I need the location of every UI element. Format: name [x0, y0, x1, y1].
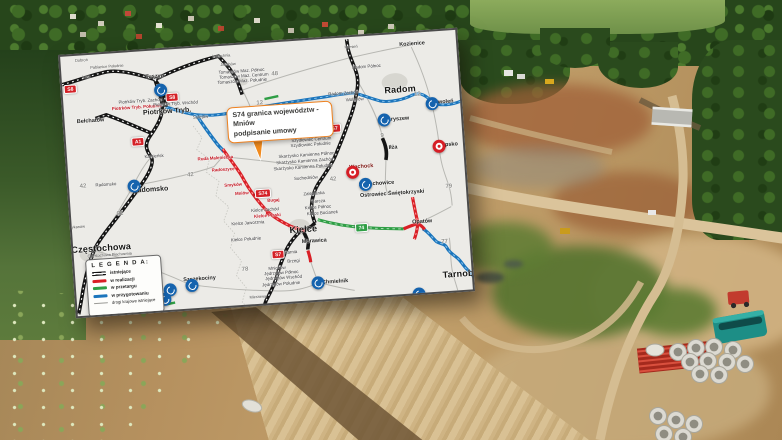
map-label: Suchedniów [294, 175, 318, 181]
map-label: Tomaszów Maz. Południe [217, 78, 267, 86]
map-marker-blue [377, 113, 391, 127]
excavator [560, 228, 570, 234]
map-label: Mierzawa [249, 294, 266, 299]
concrete-rings [646, 339, 754, 440]
legend-label: w przetargu [111, 283, 137, 290]
map-label: Wolanów [346, 97, 364, 103]
map-marker-red [432, 139, 446, 153]
road-badge-s7: S7 [271, 250, 285, 260]
map-label: Łask [82, 75, 90, 79]
map-label: 42 [187, 172, 194, 178]
map-label: 9 [380, 133, 384, 139]
map-label: Bełchatów [77, 118, 105, 125]
map-label: 77 [441, 239, 448, 245]
map-label: Mniów [235, 191, 249, 196]
map-label: 78 [242, 267, 249, 273]
legend-swatch [93, 286, 107, 290]
map-label: Tarnobrzeg [442, 267, 475, 279]
map-label: Iłża [389, 145, 398, 151]
map-marker-blue [311, 276, 325, 290]
van [712, 310, 768, 345]
legend-label: drogi krajowe istniejące [112, 297, 156, 305]
map-label: Kielce Południe [231, 236, 262, 242]
legend-swatch [94, 303, 108, 305]
map-label: Radom [384, 84, 416, 95]
excavator [545, 79, 554, 84]
map-label: 48 [271, 71, 278, 77]
map-label: Mykanów [68, 225, 85, 230]
map-label: Jakubów [220, 62, 236, 67]
bridge [651, 107, 692, 128]
map-label: Opatów [412, 219, 432, 226]
map-legend: L E G E N D A: istniejącew realizacjiw p… [85, 254, 165, 317]
map-label: 12 [414, 91, 421, 97]
map-label: Szydłowiec Południe [290, 141, 330, 148]
road-badge-s8: S8 [64, 84, 78, 94]
truck [648, 210, 656, 215]
map-label: Ruda Maleniecka [197, 155, 233, 162]
map-label: Dobroń [75, 58, 88, 63]
map-label: Jędrzejów Południe [262, 281, 300, 288]
map-label: Bugaj [267, 198, 279, 203]
map-label: Chmielnik [322, 279, 349, 286]
map-label: Pabianice Południe [90, 64, 124, 70]
legend-swatch [93, 294, 107, 298]
road-badge-s74: S74 [255, 188, 271, 198]
road-badge-a1: A1 [131, 137, 145, 147]
map-label: 79 [445, 183, 452, 189]
map-marker-blue [425, 97, 439, 111]
map-label: Kielce Jaworznia [231, 220, 264, 227]
legend-label: istniejące [110, 269, 131, 275]
callout-s74: S74 granica województw - Mniów podpisani… [226, 100, 334, 143]
map-label: Kamień [344, 45, 357, 50]
map-label: Radoszyce [212, 167, 235, 173]
map-label: Kielce Piaski [254, 213, 281, 219]
map-label: Zalezianka [303, 191, 324, 197]
legend-swatch [92, 279, 106, 283]
map-label: Kamieńsk [144, 154, 164, 160]
map-marker-blue [185, 278, 199, 292]
tractor [727, 290, 749, 308]
news-image: RadomKielceCzęstochowaTarnobrzegPiotrków… [0, 0, 782, 440]
map-label: Kozienice [399, 41, 425, 48]
legend-items: istniejącew realizacjiw przetarguw przyg… [92, 267, 159, 307]
map-label: 91 [116, 211, 123, 217]
map-label: Smyków [224, 183, 242, 189]
map-marker-blue [359, 177, 373, 191]
map-label: Morawica [302, 238, 327, 245]
road-badge-74: 74 [355, 223, 368, 233]
map-label: Kielce Bocianek [307, 210, 338, 217]
map-label: Brzegi [287, 259, 300, 264]
map-label: Kielce [289, 224, 317, 235]
map-label: Radom Północ [352, 64, 381, 70]
legend-label: w przygotowaniu [111, 290, 149, 298]
road-badge-s8: S8 [165, 92, 179, 102]
map-label: Radomsko [95, 182, 116, 188]
map-label: Tuszyn [145, 74, 164, 81]
site-container [504, 70, 513, 76]
map-label: Ostrowiec Świętokrzyski [360, 190, 425, 200]
legend-item: drogi krajowe istniejące [94, 297, 159, 306]
road-map-inset: RadomKielceCzęstochowaTarnobrzegPiotrków… [58, 28, 475, 319]
tank [241, 398, 263, 415]
map-label: 42 [79, 183, 86, 189]
map-label: Lubochnia [212, 53, 230, 58]
legend-label: w realizacji [110, 276, 135, 283]
map-marker-red [346, 165, 360, 179]
legend-swatch [92, 271, 106, 276]
map-label: Sulejów [193, 115, 209, 120]
map-label: 42 [330, 176, 337, 182]
